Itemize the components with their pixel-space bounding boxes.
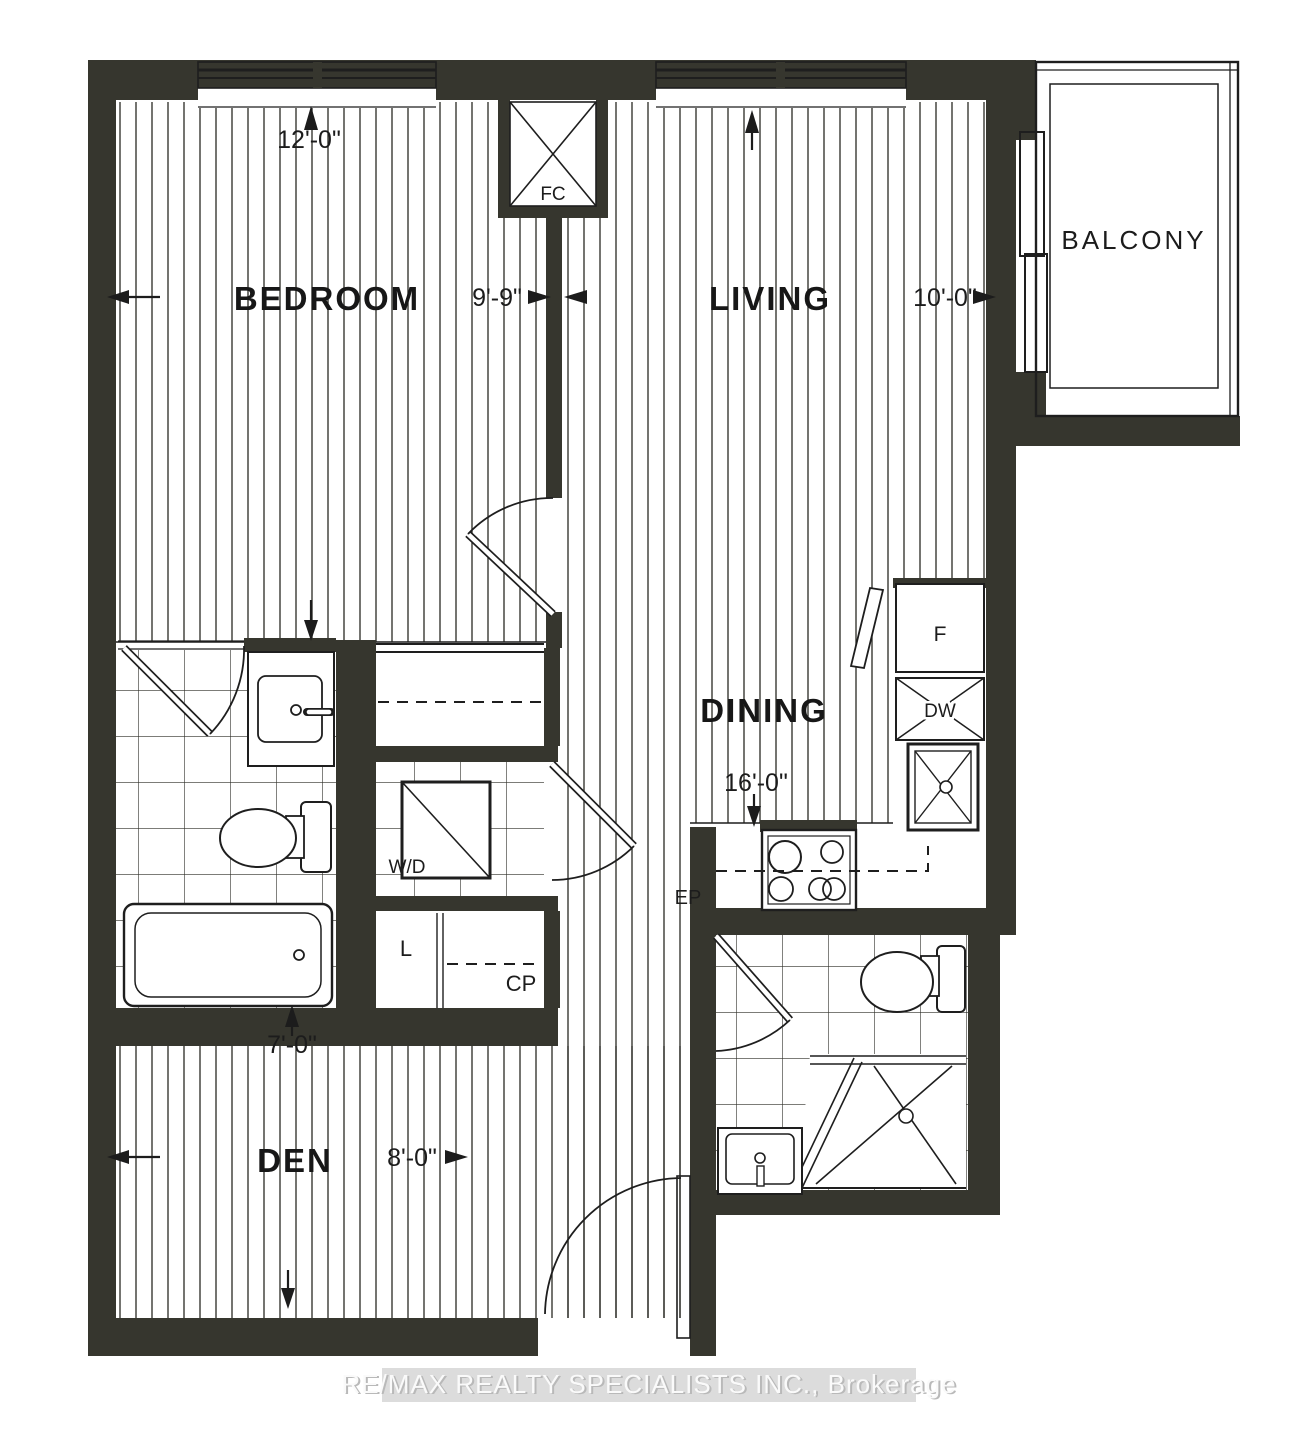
balcony: BALCONY (1020, 62, 1238, 416)
linen-and-coat-closets: L CP (400, 913, 540, 1008)
fan-coil-label: FC (540, 184, 565, 205)
vanity-sink-2 (718, 1128, 802, 1194)
brokerage-watermark-text: RE/MAX REALTY SPECIALISTS INC., Brokerag… (341, 1369, 956, 1399)
linen-closet-label: L (400, 936, 412, 961)
vanity-sink (248, 652, 334, 766)
wall-bottom (88, 1318, 538, 1356)
dishwasher: DW (896, 678, 984, 740)
kitchen-sink (908, 744, 978, 830)
wall-bath1-top (244, 638, 336, 652)
washer-dryer-label: W/D (389, 857, 426, 878)
bedroom-depth-dim: 12'-0" (277, 126, 341, 154)
floor-plan-page: BALCONY FC W/D L CP (0, 0, 1300, 1429)
den-width-dim: 8'-0" (387, 1144, 437, 1172)
dining-length-dim: 16'-0" (724, 769, 788, 797)
bedroom-label: BEDROOM (234, 280, 420, 317)
balcony-sliding-door (1020, 132, 1047, 372)
electrical-panel-label: EP (675, 887, 702, 909)
balcony-label: BALCONY (1061, 225, 1206, 255)
bathtub (124, 904, 332, 1006)
wall-kitchen-bottom (690, 908, 1016, 935)
fridge-label: F (934, 623, 947, 646)
wall-left (88, 60, 116, 1356)
wall-partition (546, 218, 562, 498)
wall-closet-front (544, 648, 560, 746)
wall-bath1-bottom (88, 1008, 558, 1046)
wall-bath1-right (336, 640, 376, 1010)
wall-right (986, 140, 1016, 935)
den-label: DEN (257, 1142, 333, 1179)
dining-label: DINING (700, 692, 828, 729)
bedroom-closet (376, 644, 544, 702)
washer-dryer: W/D (389, 782, 490, 878)
wall-bath2-right (968, 935, 1000, 1190)
dishwasher-label: DW (924, 701, 956, 722)
bedroom-floor (116, 102, 546, 642)
coat-closet-label: CP (506, 971, 537, 996)
floor-plan-svg: BALCONY FC W/D L CP (0, 0, 1300, 1429)
wall-fc-left (498, 100, 510, 218)
wall-under-balcony-left (1016, 372, 1046, 446)
wall-under-balcony (1046, 416, 1240, 446)
bedroom-width-dim: 9'-9" (472, 284, 522, 312)
living-label: LIVING (709, 280, 831, 317)
brokerage-watermark: RE/MAX REALTY SPECIALISTS INC., Brokerag… (341, 1368, 958, 1402)
wall-partition-stub (546, 612, 562, 648)
corner-shower (794, 1054, 966, 1188)
living-width-dim: 10'-0" (913, 284, 977, 312)
wall-fc-right (596, 100, 608, 218)
wall-closet-bottom (376, 746, 558, 762)
den-floor (116, 1046, 690, 1318)
wall-laundry-bottom (376, 896, 558, 911)
wall-fc-bottom (498, 206, 608, 218)
fan-coil-unit: FC (510, 102, 596, 206)
wall-right-corner (986, 100, 1036, 140)
wall-lcp-front (544, 911, 560, 1008)
